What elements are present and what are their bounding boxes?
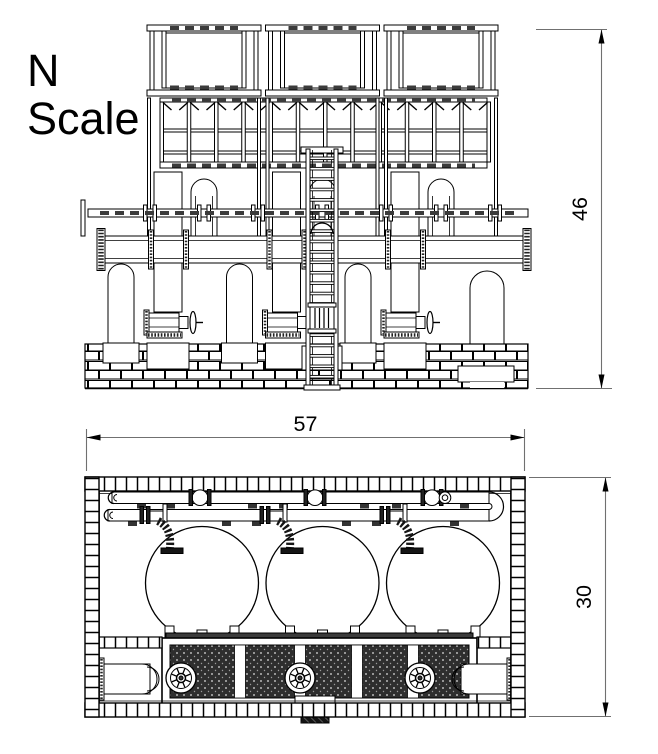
side-pipe-stub xyxy=(461,664,507,694)
dome-cylinder xyxy=(191,179,217,237)
frame-column xyxy=(269,102,273,162)
dimension-arrow xyxy=(599,30,605,44)
dimension-arrow xyxy=(603,478,609,492)
ladder-rung xyxy=(310,251,334,254)
frame-column xyxy=(160,102,164,162)
ladder-rung xyxy=(310,261,334,264)
frame-column xyxy=(187,102,191,162)
plan-view xyxy=(85,477,525,723)
fan-impeller xyxy=(285,663,315,693)
pipe-coupling xyxy=(424,490,440,506)
dimension-arrow xyxy=(599,375,605,389)
storage-tank-elevation xyxy=(266,25,380,96)
valve-assembly xyxy=(144,310,203,338)
pedestal xyxy=(384,343,426,369)
scale-label-line1: N xyxy=(27,45,60,96)
ladder-rung xyxy=(310,240,334,243)
dimension-arrow xyxy=(603,703,609,717)
dimension-arrow xyxy=(87,435,101,441)
fan-impeller xyxy=(405,663,435,693)
elevation-height-dimension-text: 46 xyxy=(568,197,592,221)
storage-tank-plan xyxy=(387,527,500,640)
ladder-rung xyxy=(310,282,334,285)
pipe-coupling xyxy=(192,490,208,506)
ladder-rung xyxy=(310,355,334,358)
inner-wall xyxy=(99,637,162,648)
ladder-rung xyxy=(310,188,334,191)
side-pipe-stub xyxy=(104,664,150,694)
frame-column xyxy=(487,102,491,162)
fan-impeller xyxy=(166,663,196,693)
storage-tank-elevation xyxy=(147,25,261,96)
ladder-rung xyxy=(310,365,334,368)
ladder-rung xyxy=(310,344,334,347)
dome-pipe xyxy=(227,264,253,344)
dome-pipe xyxy=(108,264,134,344)
pedestal xyxy=(222,343,258,363)
frame-column xyxy=(242,102,246,162)
ladder-rung xyxy=(310,209,334,212)
pipe-coupling xyxy=(307,490,323,506)
storage-tank-plan xyxy=(146,527,259,640)
drawing-sheet: N Scale 57 46 30 xyxy=(0,0,658,754)
pedestal xyxy=(103,343,139,363)
frame-column xyxy=(405,102,409,162)
plan-depth-dimension-text: 30 xyxy=(572,585,596,609)
frame-column xyxy=(215,102,219,162)
frame-column xyxy=(296,102,300,162)
ladder-rung xyxy=(310,199,334,202)
pedestal xyxy=(266,343,308,369)
handwheel xyxy=(190,312,196,334)
technical-drawing: N Scale 57 46 30 xyxy=(0,0,658,754)
ladder-rung xyxy=(310,157,334,160)
storage-tank-plan xyxy=(266,527,379,640)
inner-wall xyxy=(477,637,511,648)
frame-column xyxy=(351,102,355,162)
frame-column xyxy=(460,102,464,162)
dimension-arrow xyxy=(511,435,525,441)
pedestal xyxy=(147,343,189,369)
frame-column xyxy=(433,102,437,162)
ladder-rung xyxy=(310,292,334,295)
elevation-view xyxy=(81,25,531,390)
ladder-rung xyxy=(310,271,334,274)
pedestal xyxy=(458,366,514,382)
pedestal xyxy=(340,343,376,363)
column xyxy=(81,200,85,236)
storage-tank-elevation xyxy=(384,25,498,96)
ladder-rung xyxy=(310,230,334,233)
fan-bay xyxy=(162,633,477,704)
ladder-rung xyxy=(310,375,334,378)
ladder-rung xyxy=(310,178,334,181)
ladder-rung xyxy=(310,219,334,222)
valve-assembly xyxy=(381,310,440,338)
dome-pipe xyxy=(345,264,371,344)
ladder-rung xyxy=(310,167,334,170)
dome-cylinder xyxy=(428,179,454,237)
plan-width-dimension-text: 57 xyxy=(294,412,318,436)
scale-label-line2: Scale xyxy=(27,93,140,144)
ladder-rung xyxy=(310,334,334,337)
handwheel xyxy=(427,312,433,334)
